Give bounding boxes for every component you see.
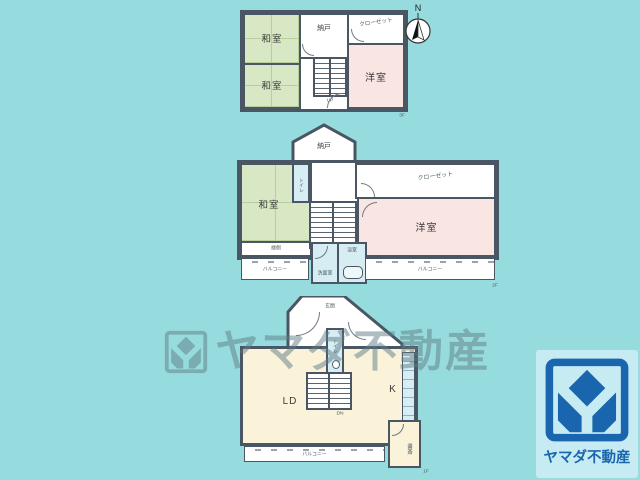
floor2-yoshitsu: 洋室 — [357, 197, 496, 257]
company-name: ヤマダ不動産 — [544, 446, 631, 467]
room-label: 納戸 — [307, 143, 341, 150]
watermark-logo-icon — [164, 330, 208, 374]
room-label: 縁側 — [252, 246, 300, 251]
floor3-plan: 和室 和室 納戸 クローゼット 洋室 UP — [240, 10, 408, 112]
floor2-balcony-left: バルコニー — [241, 258, 309, 280]
room-label: バルコニー — [385, 267, 475, 272]
floor1-stairs — [306, 372, 352, 410]
floor2-closet: クローゼット — [355, 163, 496, 199]
floor2-plan: 納戸 和室 トイレ クローゼット 洋室 縁側 UP DN — [237, 122, 499, 286]
floor3-yoshitsu: 洋室 — [347, 43, 405, 109]
floor2-balcony-right: バルコニー — [365, 258, 495, 280]
floor-plan-flyer: 和室 和室 納戸 クローゼット 洋室 UP 3F N — [0, 0, 640, 480]
floor3-stairs — [313, 57, 347, 97]
compass: N — [403, 4, 433, 45]
room-label: 納戸 — [304, 25, 343, 32]
company-logo-icon — [544, 357, 630, 443]
floor2-senmenshitsu: 洗面室 — [311, 242, 339, 284]
company-logo: ヤマダ不動産 — [536, 350, 638, 478]
door-arc — [361, 183, 375, 197]
room-label: 書斎 — [407, 439, 413, 460]
door-arc — [392, 424, 404, 436]
floor1-plan: 玄関 LD K トイレ DN 書斎 バルコニー 1F — [240, 296, 455, 474]
room-label: 和室 — [245, 35, 299, 45]
floor3-washitsu-upper: 和室 — [243, 13, 301, 65]
room-label: バルコニー — [252, 267, 298, 272]
watermark: ヤマダ不動産 — [164, 330, 491, 374]
compass-icon — [403, 13, 433, 45]
watermark-text: ヤマダ不動産 — [215, 330, 491, 374]
room-label: バルコニー — [266, 452, 363, 457]
door-arc — [351, 29, 364, 42]
floor3-closet: クローゼット — [347, 13, 405, 45]
room-label: トイレ — [298, 173, 303, 197]
room-label: 洗面室 — [317, 271, 334, 276]
floor2-toilet: トイレ — [292, 163, 310, 203]
floor3-tag: 3F — [395, 113, 409, 118]
room-label: 和室 — [245, 82, 299, 92]
floor1-tag: 1F — [419, 469, 433, 474]
room-label: 和室 — [242, 201, 296, 211]
room-label: 浴室 — [343, 248, 361, 253]
floor2-main: 和室 トイレ クローゼット 洋室 縁側 UP DN — [237, 160, 499, 260]
room-label: クローゼット — [354, 17, 398, 29]
floor3-washitsu-lower: 和室 — [243, 63, 301, 109]
floor2-yokushitsu: 浴室 — [337, 242, 367, 284]
floor2-engawa: 縁側 — [240, 241, 312, 257]
floor2-tag: 2F — [488, 283, 502, 288]
door-arc — [315, 246, 328, 259]
room-label: クローゼット — [403, 170, 469, 184]
bathtub-icon — [343, 266, 363, 279]
floor1-shosai: 書斎 — [388, 420, 421, 468]
room-label: 洋室 — [359, 223, 494, 234]
floor1-balcony: バルコニー — [244, 446, 385, 462]
stairs-direction: DN — [332, 411, 349, 416]
room-label: 洋室 — [349, 73, 403, 84]
compass-north-label: N — [415, 4, 422, 13]
room-label: 玄関 — [316, 304, 344, 309]
door-arc — [362, 202, 377, 217]
